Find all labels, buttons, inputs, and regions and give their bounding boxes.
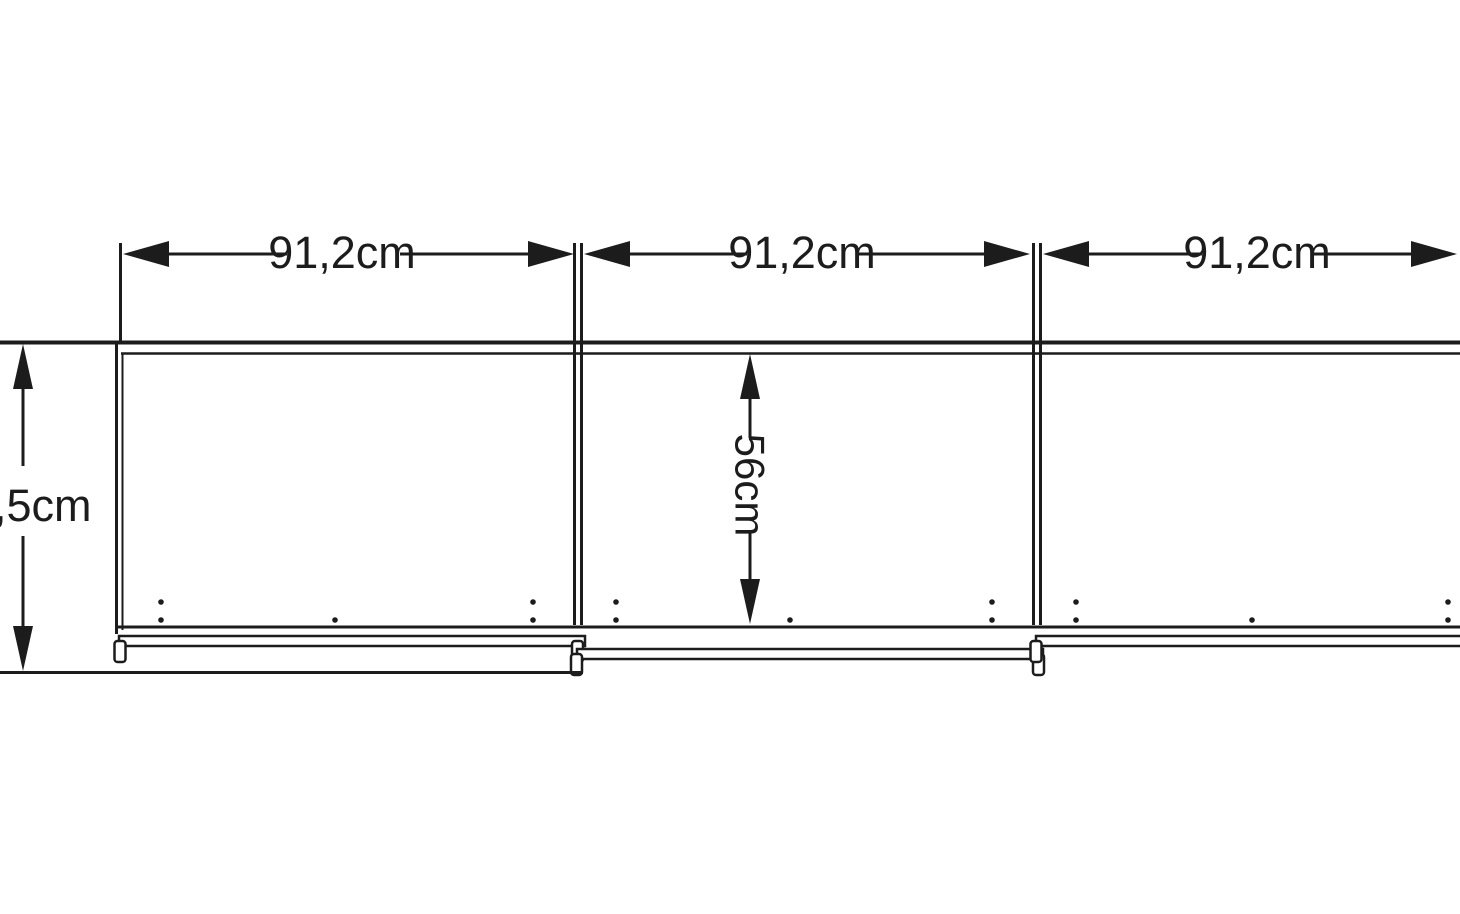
interior-depth-label: 56cm: [727, 434, 774, 537]
arrow-left-icon: [1043, 241, 1089, 267]
sliding-doors: [115, 636, 1460, 675]
arrow-down-icon: [13, 626, 33, 671]
drill-hole: [1073, 617, 1079, 623]
arrow-right-icon: [1411, 241, 1457, 267]
drill-hole: [1445, 599, 1451, 605]
drill-hole: [613, 599, 619, 605]
drill-hole: [530, 617, 536, 623]
drill-hole: [158, 599, 164, 605]
right-door-cap-left: [1031, 641, 1042, 662]
drill-holes: [158, 599, 1451, 623]
extension-lines: [121, 243, 1041, 625]
arrow-up-icon: [13, 344, 33, 389]
wardrobe-dimension-diagram: 91,2cm 91,2cm 91,2cm: [0, 0, 1460, 914]
drill-hole: [613, 617, 619, 623]
width-dimension-3-label: 91,2cm: [1183, 227, 1331, 278]
drill-hole: [1073, 599, 1079, 605]
arrow-left-icon: [123, 241, 169, 267]
width-dimension-2: 91,2cm: [584, 227, 1030, 278]
depth-dimension-total: ,5cm: [0, 344, 583, 673]
arrow-right-icon: [984, 241, 1030, 267]
drill-hole: [989, 617, 995, 623]
middle-door-panel: [577, 649, 1043, 659]
arrow-left-icon: [584, 241, 630, 267]
width-dimension-3: 91,2cm: [1043, 227, 1457, 278]
drill-hole: [1445, 617, 1451, 623]
drill-hole: [787, 617, 793, 623]
arrow-up-icon: [740, 354, 760, 399]
width-dimension-2-label: 91,2cm: [728, 227, 876, 278]
width-dimension-1-label: 91,2cm: [268, 227, 416, 278]
depth-dimension-interior: 56cm: [727, 354, 774, 624]
total-depth-label: ,5cm: [0, 480, 92, 531]
width-dimension-1: 91,2cm: [123, 227, 574, 278]
diagram-canvas: 91,2cm 91,2cm 91,2cm: [0, 0, 1460, 914]
drill-hole: [332, 617, 338, 623]
drill-hole: [989, 599, 995, 605]
arrow-right-icon: [528, 241, 574, 267]
left-door-cap-left: [115, 641, 126, 662]
arrow-down-icon: [740, 579, 760, 624]
drill-hole: [530, 599, 536, 605]
left-door-panel: [119, 636, 585, 646]
drill-hole: [1249, 617, 1255, 623]
right-door-panel: [1036, 636, 1460, 646]
drill-hole: [158, 617, 164, 623]
